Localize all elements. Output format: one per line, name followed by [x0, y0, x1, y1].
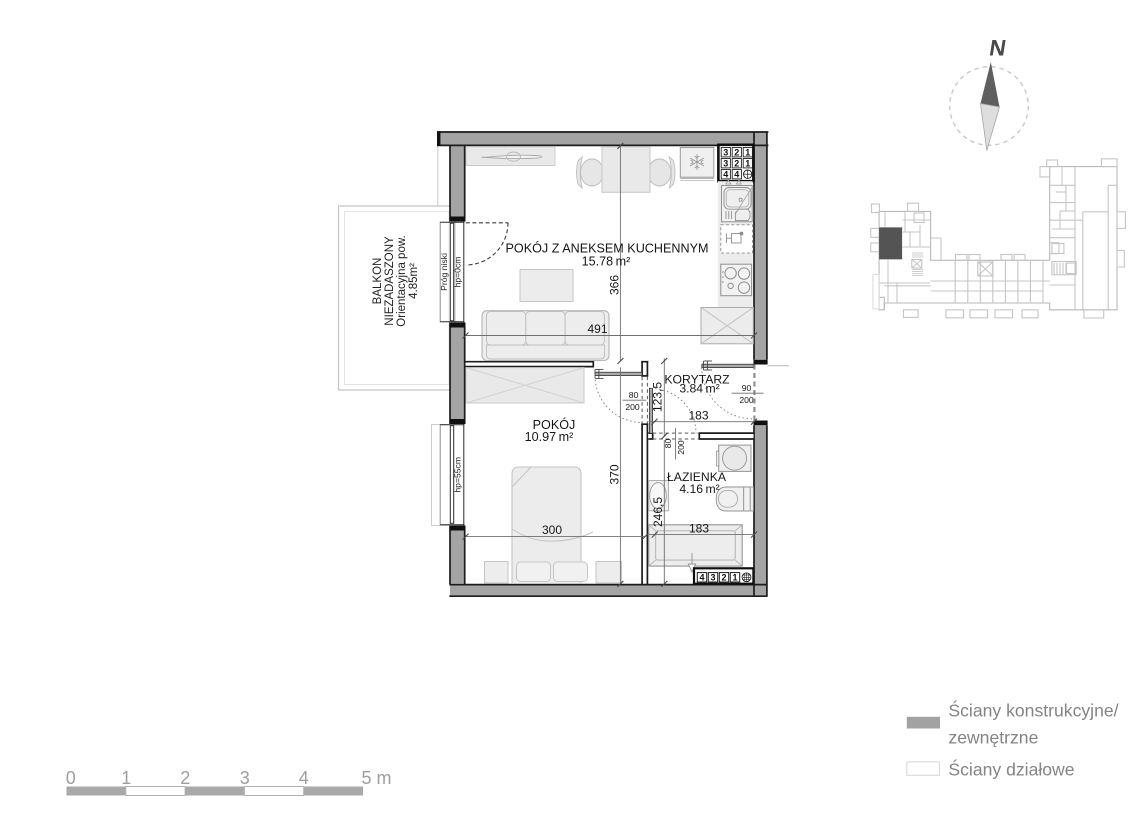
svg-text:491: 491 — [587, 322, 607, 336]
svg-text:1: 1 — [745, 159, 750, 169]
svg-text:3: 3 — [723, 159, 728, 169]
svg-text:1: 1 — [732, 573, 737, 583]
svg-text:4: 4 — [734, 170, 739, 180]
svg-text:370: 370 — [607, 464, 621, 484]
svg-text:1: 1 — [121, 768, 131, 788]
svg-text:2: 2 — [734, 159, 739, 169]
svg-text:3.84 m²: 3.84 m² — [679, 381, 719, 395]
svg-text:300: 300 — [542, 523, 562, 537]
svg-text:2: 2 — [180, 768, 190, 788]
svg-text:183: 183 — [689, 521, 709, 535]
svg-text:Próg niski: Próg niski — [439, 253, 449, 291]
svg-text:zewnętrzne: zewnętrzne — [948, 727, 1038, 747]
svg-text:90: 90 — [742, 383, 752, 393]
svg-text:200: 200 — [625, 402, 640, 412]
svg-text:4.16 m²: 4.16 m² — [679, 482, 719, 496]
svg-text:80: 80 — [663, 439, 673, 449]
svg-text:Orientacyjna pow.: Orientacyjna pow. — [396, 235, 408, 326]
svg-text:Ściany działowe: Ściany działowe — [948, 758, 1074, 779]
svg-text:366: 366 — [607, 275, 621, 295]
svg-text:4: 4 — [723, 170, 728, 180]
svg-text:5 m: 5 m — [362, 768, 392, 788]
svg-text:4.85m²: 4.85m² — [408, 263, 420, 299]
svg-text:4: 4 — [299, 768, 309, 788]
svg-text:N: N — [988, 36, 1008, 61]
svg-text:NIEZADASZONY: NIEZADASZONY — [384, 236, 396, 326]
svg-text:246,5: 246,5 — [651, 497, 665, 527]
svg-text:hp=55cm: hp=55cm — [452, 457, 462, 493]
svg-text:80: 80 — [629, 390, 639, 400]
svg-text:200: 200 — [739, 395, 754, 405]
svg-text:BALKON: BALKON — [372, 258, 384, 305]
svg-text:1: 1 — [745, 148, 750, 158]
svg-text:0: 0 — [66, 768, 76, 788]
svg-text:15.78 m²: 15.78 m² — [582, 254, 631, 268]
svg-text:3: 3 — [723, 148, 728, 158]
svg-text:2: 2 — [721, 573, 726, 583]
svg-text:3: 3 — [240, 768, 250, 788]
svg-text:183: 183 — [688, 408, 708, 422]
svg-text:Ściany konstrukcyjne/: Ściany konstrukcyjne/ — [948, 699, 1118, 720]
svg-text:2: 2 — [734, 148, 739, 158]
svg-text:10.97 m²: 10.97 m² — [525, 430, 574, 444]
svg-text:POKÓJ Z ANEKSEM KUCHENNYM: POKÓJ Z ANEKSEM KUCHENNYM — [506, 241, 709, 256]
svg-text:123,5: 123,5 — [650, 382, 664, 412]
svg-text:3: 3 — [710, 573, 715, 583]
svg-text:4: 4 — [699, 573, 704, 583]
svg-text:200: 200 — [676, 440, 686, 455]
svg-text:hp=0cm: hp=0cm — [452, 257, 462, 288]
